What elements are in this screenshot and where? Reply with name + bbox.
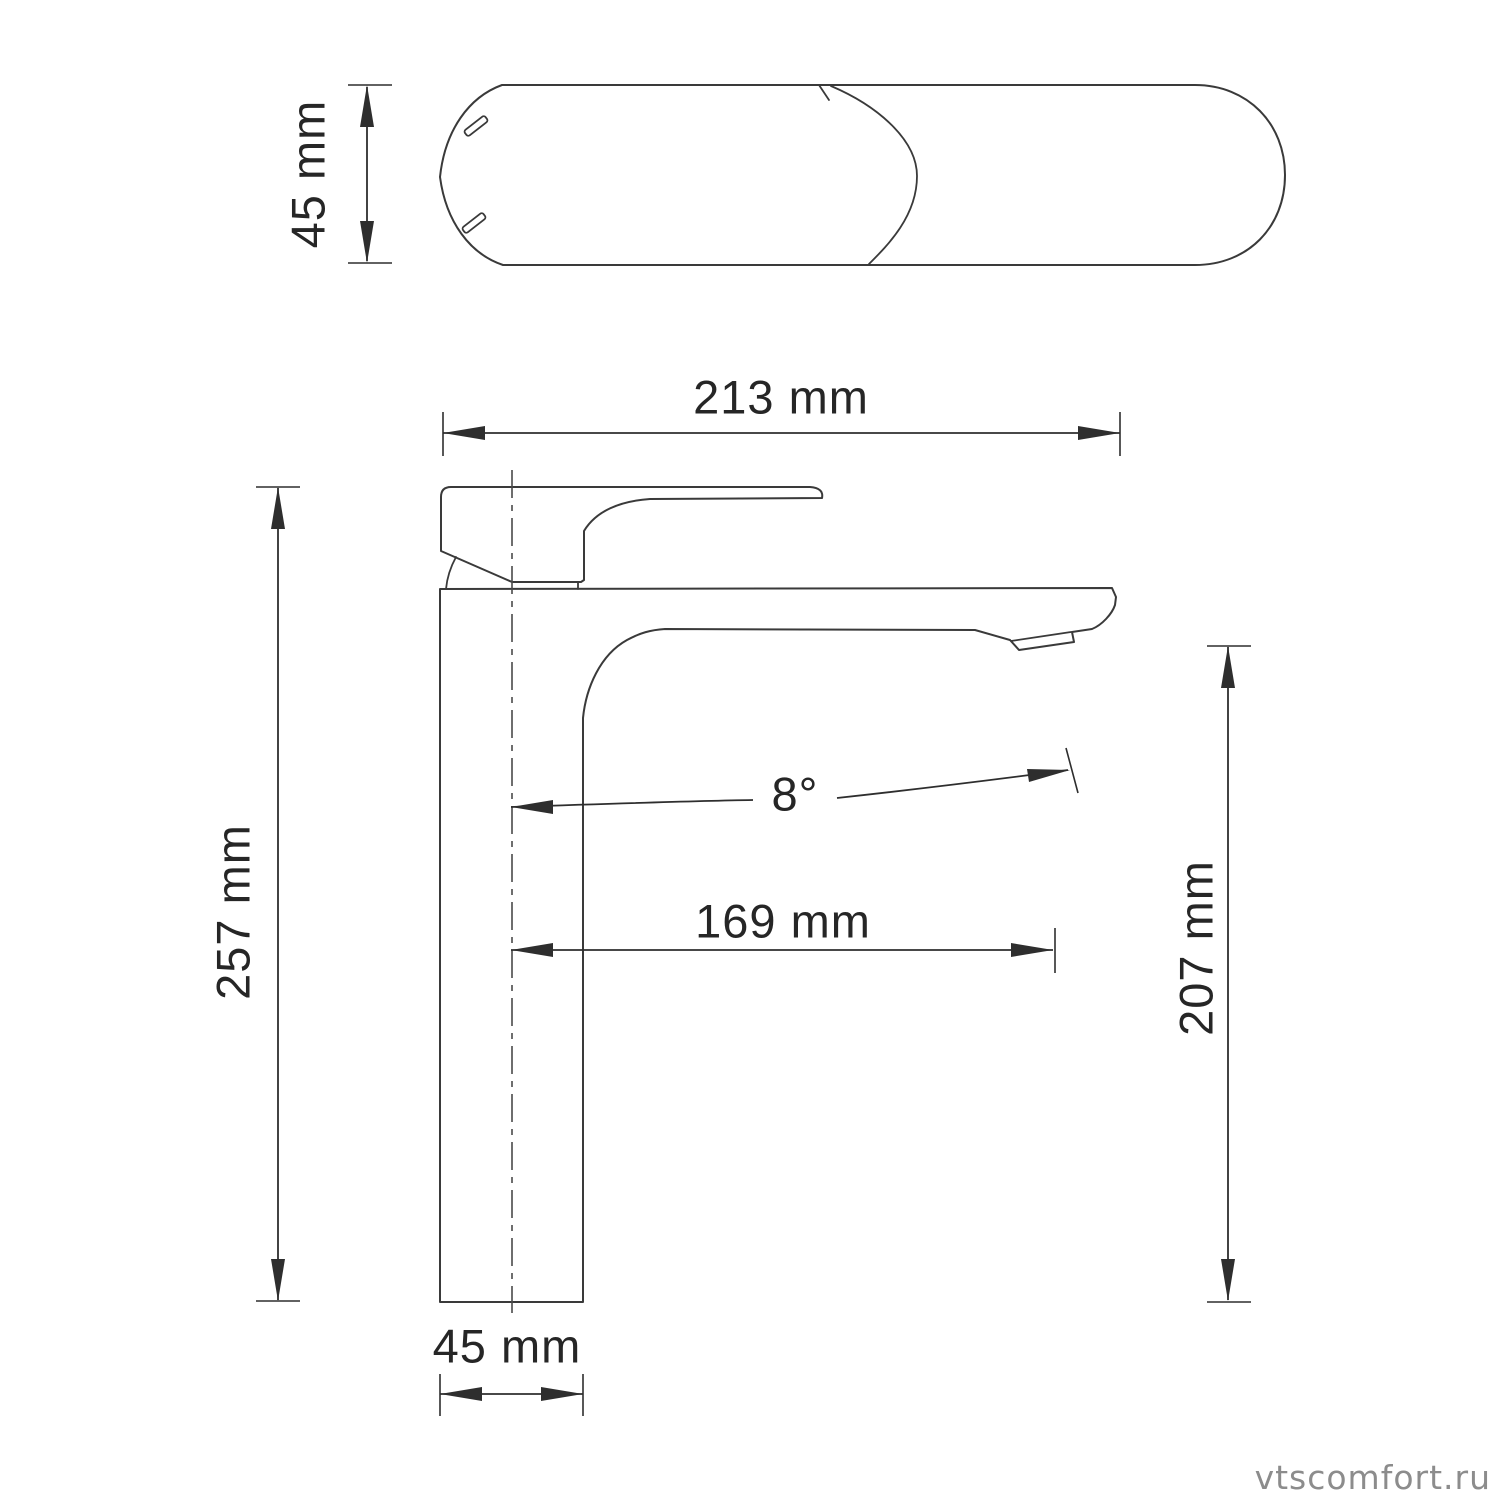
arrowhead-left	[440, 1387, 482, 1401]
aerator-top-edge	[1011, 632, 1071, 641]
arrowhead-left	[511, 800, 553, 814]
top-view-handle-split-curve	[831, 86, 917, 264]
arrowhead-left	[511, 943, 553, 957]
spout-height-label: 207 mm	[1170, 860, 1223, 1036]
cold-indicator-slash	[462, 212, 487, 234]
technical-drawing-page: 45 mm 213 mm 257 mm	[0, 0, 1500, 1500]
spout-reach-label: 169 mm	[695, 895, 871, 948]
spout-angle-dimension: 8°	[511, 748, 1078, 821]
faucet-dimension-drawing: 45 mm 213 mm 257 mm	[0, 0, 1500, 1500]
base-width-label: 45 mm	[433, 1320, 582, 1373]
top-view-split-notch	[819, 85, 829, 100]
overall-height-label: 257 mm	[207, 824, 260, 1000]
spout-angle-label: 8°	[772, 768, 819, 821]
arrowhead-angled	[1027, 769, 1070, 782]
hot-indicator-slash	[464, 115, 489, 137]
overall-length-dimension: 213 mm	[443, 371, 1120, 457]
arrowhead-up	[1221, 646, 1235, 688]
spout-height-dimension: 207 mm	[1170, 646, 1252, 1302]
top-view-height-label: 45 mm	[282, 100, 335, 249]
arrowhead-down	[360, 221, 374, 263]
overall-length-label: 213 mm	[693, 371, 869, 424]
arrowhead-right	[1078, 426, 1120, 440]
arrowhead-up	[271, 487, 285, 529]
spout-reach-dimension: 169 mm	[511, 895, 1055, 974]
arrowhead-left	[443, 426, 485, 440]
handle-skirt-arc	[446, 557, 456, 589]
arrowhead-up	[360, 85, 374, 127]
arrowhead-right	[1011, 943, 1053, 957]
side-view: 213 mm 257 mm 8° 169 mm	[207, 371, 1252, 1417]
side-view-handle-outline	[441, 487, 822, 582]
arrowhead-down	[1221, 1259, 1235, 1301]
top-view: 45 mm	[282, 85, 1286, 265]
arrowhead-down	[271, 1259, 285, 1301]
top-view-height-dimension: 45 mm	[282, 85, 393, 263]
top-view-body-outline	[440, 85, 1285, 265]
watermark-text: vtscomfort.ru	[1255, 1458, 1491, 1497]
arrowhead-right	[541, 1387, 583, 1401]
overall-height-dimension: 257 mm	[207, 487, 301, 1301]
base-width-dimension: 45 mm	[433, 1320, 583, 1417]
